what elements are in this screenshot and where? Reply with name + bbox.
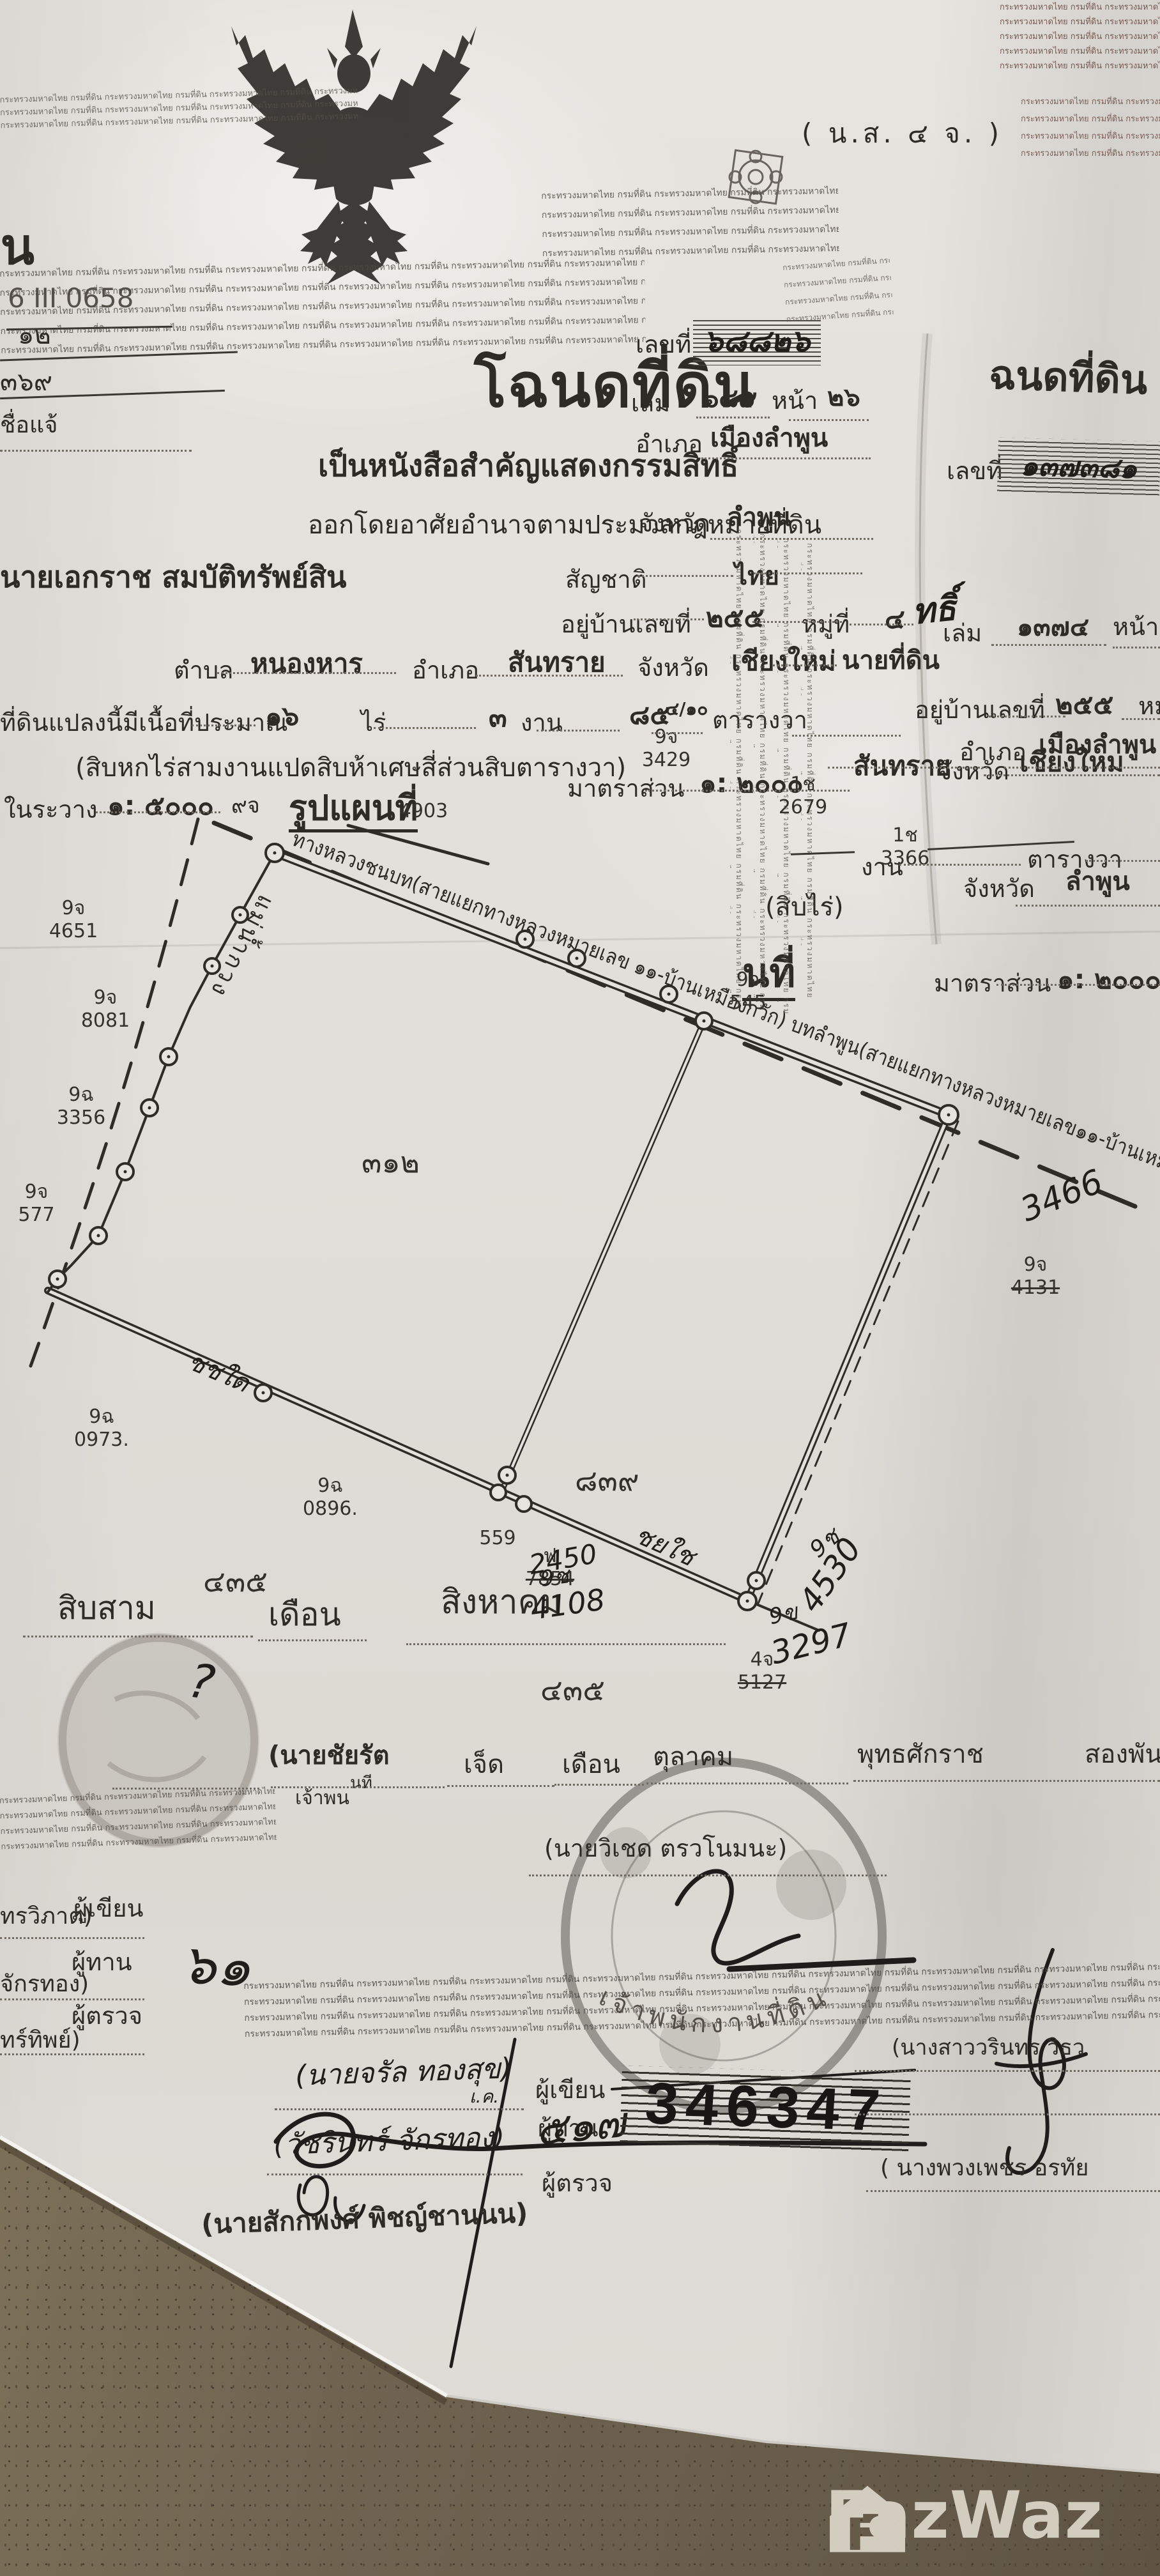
handwritten-annotation: ชยใช [631, 1522, 698, 1570]
map-sheet-label: 4903 [382, 800, 465, 823]
dotted-fill-line [792, 735, 901, 737]
dotted-fill-line [637, 575, 733, 577]
dotted-fill-line [710, 538, 873, 540]
rule-line [927, 841, 1074, 850]
map-sheet-label: 9ฉ0896. [289, 1475, 372, 1521]
handwritten-annotation: 9ข [767, 1601, 800, 1629]
map-sheet-label: 9จ577 [0, 1181, 78, 1227]
handwritten-annotation: 3466 [1016, 1165, 1107, 1227]
dotted-fill-line [447, 1785, 554, 1787]
dotted-fill-line [1004, 767, 1160, 769]
map-sheet-label: 9จ545 [706, 969, 790, 1015]
dotted-fill-line [267, 2173, 523, 2175]
dotted-fill-line [866, 2190, 1160, 2192]
dotted-fill-line [275, 2108, 524, 2110]
dotted-fill-line [96, 811, 220, 813]
photo-canvas: ทางหลวงชนบท(สายแยกทางหลวงหมายเลข ๑๑-บ้าน… [0, 0, 1160, 2576]
parcel-number: ๔๓๕ [203, 1564, 268, 1599]
handwritten-annotation: ? [185, 1657, 218, 1708]
dotted-fill-line [754, 572, 862, 574]
map-sheet-label: 9จ4131 [994, 1253, 1077, 1299]
parcel-number: ๘๓๙ [575, 1463, 639, 1498]
dotted-fill-line [0, 2053, 144, 2055]
dotted-fill-line [271, 1786, 445, 1788]
pattern-text-block: กระทรวงมหาดไทย กรมที่ดิน กระทรวงมหาดไทย … [243, 1959, 1160, 2044]
map-sheet-label: 9จ4651 [32, 897, 115, 943]
dotted-fill-line [850, 624, 913, 625]
dotted-fill-line [1122, 718, 1160, 720]
rule-line [791, 851, 855, 855]
dotted-fill-line [1113, 647, 1160, 648]
pattern-text-block: กระทรวงมหาดไทย กรมที่ดิน กระทรวงมหาดไทย … [782, 252, 894, 329]
dotted-fill-line [646, 1782, 848, 1784]
dotted-fill-line [0, 1937, 144, 1939]
pattern-text-block: กระทรวงมหาดไทย กรมที่ดิน กระทรวงมหาดไทย … [1021, 93, 1160, 165]
map-sheet-label: 9ฉ0973. [60, 1406, 143, 1452]
handwritten-annotation: ชชใด [184, 1348, 253, 1397]
dotted-fill-line [0, 450, 192, 452]
dotted-fill-line [853, 1780, 1160, 1782]
dotted-fill-line [645, 790, 850, 792]
pattern-text-vertical: กระทรวงมหาดไทย กรมที่ดิน กระทรวงมหาดไทย … [730, 529, 745, 1021]
dotted-fill-line [537, 730, 620, 732]
dotted-fill-line [0, 1998, 144, 2000]
dotted-fill-line [1086, 860, 1160, 862]
pattern-text-block: กระทรวงมหาดไทย กรมที่ดิน กระทรวงมหาดไทย … [541, 181, 839, 264]
rule-line [0, 390, 225, 399]
pattern-text-block: กระทรวงมหาดไทย กรมที่ดิน กระทรวงมหาดไทย … [1000, 0, 1160, 75]
dotted-fill-line [828, 767, 988, 769]
parcel-number: ๓๑๒ [362, 1145, 420, 1180]
dotted-fill-line [192, 724, 256, 726]
dotted-fill-line [23, 1636, 253, 1637]
dotted-fill-line [529, 1874, 887, 1876]
dotted-fill-line [773, 664, 837, 666]
handwritten-annotation: 4108 [528, 1584, 606, 1624]
dynamic-layer: กระทรวงมหาดไทย กรมที่ดิน กระทรวงมหาดไทย … [0, 0, 1160, 2576]
dotted-fill-line [112, 1788, 259, 1790]
dotted-fill-line [752, 621, 842, 623]
dotted-fill-line [991, 644, 1106, 646]
dotted-fill-line [374, 727, 476, 729]
map-sheet-label: 559 [456, 1527, 539, 1550]
map-sheet-label: 1ช2679 [761, 773, 844, 819]
dotted-fill-line [984, 774, 1160, 776]
dotted-fill-line [476, 675, 623, 677]
dotted-fill-line [258, 1639, 367, 1641]
pattern-text-block: กระทรวงมหาดไทย กรมที่ดิน กระทรวงมหาดไทย … [0, 1784, 277, 1856]
dotted-fill-line [217, 672, 396, 674]
dotted-fill-line [996, 984, 1160, 986]
dotted-fill-line [989, 716, 1065, 717]
dotted-fill-line [701, 457, 871, 459]
parcel-number: ๔๓๕ [540, 1673, 605, 1708]
dotted-fill-line [634, 618, 704, 620]
dotted-fill-line [855, 2070, 1160, 2072]
dotted-fill-line [406, 1643, 726, 1645]
dotted-fill-line [789, 419, 869, 421]
handwritten-annotation: 4530 [794, 1533, 867, 1618]
dotted-fill-line [554, 1784, 644, 1786]
map-sheet-label: 9ฉ3356 [40, 1084, 123, 1130]
dotted-fill-line [855, 2113, 1160, 2115]
map-sheet-label: 9จ8081 [64, 986, 147, 1032]
dotted-fill-line [1016, 905, 1160, 907]
dotted-fill-line [899, 864, 1021, 866]
pattern-text-block: กระทรวงมหาดไทย กรมที่ดิน กระทรวงมหาดไทย … [0, 253, 646, 360]
pattern-text-block: กระทรวงมหาดไทย กรมที่ดิน กระทรวงมหาดไทย … [0, 85, 358, 134]
dotted-fill-line [652, 732, 703, 734]
dotted-fill-line [696, 417, 770, 418]
